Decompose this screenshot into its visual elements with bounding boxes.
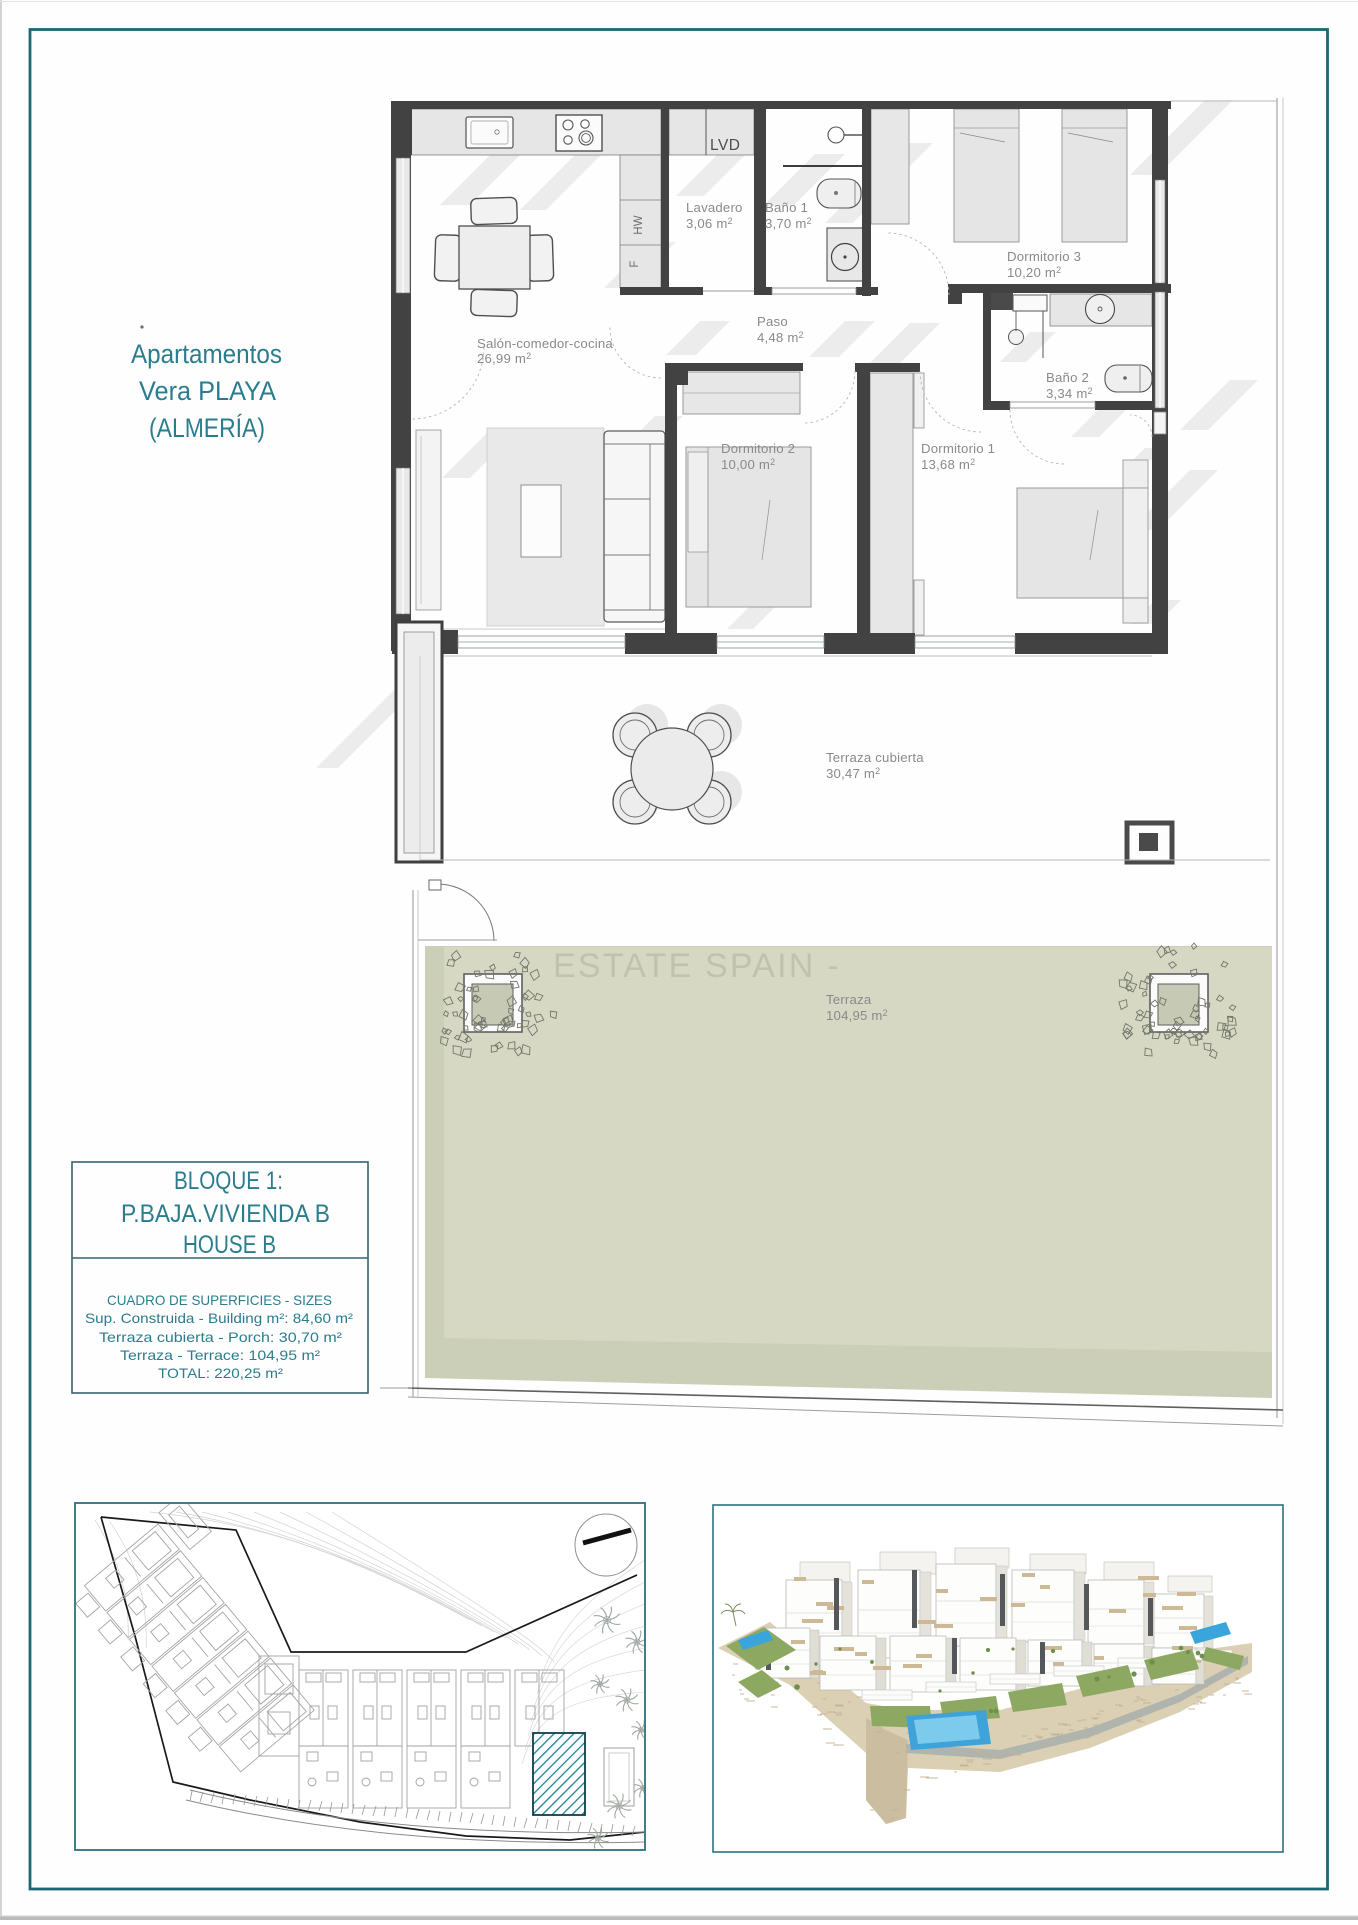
svg-text:(ALMERÍA): (ALMERÍA) — [149, 413, 265, 443]
svg-text:Terraza cubierta - Porch: 30,: Terraza cubierta - Porch: 30,70 m² — [99, 1329, 342, 1345]
svg-text:Baño 2: Baño 2 — [1046, 370, 1089, 385]
svg-text:3,34 m2: 3,34 m2 — [1046, 386, 1093, 401]
svg-text:CUADRO DE SUPERFICIES - SIZES: CUADRO DE SUPERFICIES - SIZES — [107, 1292, 332, 1308]
svg-text:Terraza: Terraza — [826, 992, 872, 1007]
svg-text:Dormitorio 2: Dormitorio 2 — [721, 441, 795, 456]
svg-text:TOTAL: 220,25 m²: TOTAL: 220,25 m² — [158, 1365, 283, 1381]
svg-text:HW: HW — [633, 215, 645, 235]
svg-text:F: F — [629, 260, 641, 267]
svg-text:Lavadero: Lavadero — [686, 200, 743, 215]
svg-text:104,95 m2: 104,95 m2 — [826, 1008, 888, 1023]
svg-text:Vera PLAYA: Vera PLAYA — [139, 376, 276, 406]
svg-text:4,48 m2: 4,48 m2 — [757, 330, 804, 345]
svg-text:BLOQUE 1:: BLOQUE 1: — [174, 1167, 283, 1195]
svg-text:26,99 m2: 26,99 m2 — [477, 351, 531, 366]
svg-text:3,70 m2: 3,70 m2 — [765, 216, 812, 231]
svg-text:Dormitorio 3: Dormitorio 3 — [1007, 249, 1081, 264]
svg-text:LVD: LVD — [710, 137, 741, 154]
svg-text:Dormitorio 1: Dormitorio 1 — [921, 441, 995, 456]
svg-text:Sup. Construida - Building m²: Sup. Construida - Building m²: 84,60 m² — [85, 1310, 353, 1326]
svg-text:10,00 m2: 10,00 m2 — [721, 457, 775, 472]
svg-text:Paso: Paso — [757, 314, 788, 329]
svg-text:ESTATE SPAIN -: ESTATE SPAIN - — [553, 947, 841, 985]
svg-text:P.BAJA.VIVIENDA B: P.BAJA.VIVIENDA B — [121, 1200, 330, 1228]
svg-text:10,20 m2: 10,20 m2 — [1007, 265, 1061, 280]
svg-text:HOUSE B: HOUSE B — [183, 1231, 276, 1259]
svg-text:13,68 m2: 13,68 m2 — [921, 457, 975, 472]
svg-text:Baño 1: Baño 1 — [765, 200, 808, 215]
svg-text:Salón-comedor-cocina: Salón-comedor-cocina — [477, 336, 613, 351]
svg-text:Apartamentos: Apartamentos — [131, 339, 282, 369]
svg-text:Terraza cubierta: Terraza cubierta — [826, 750, 924, 765]
svg-text:3,06 m2: 3,06 m2 — [686, 216, 733, 231]
svg-text:Terraza - Terrace: 104,95 m²: Terraza - Terrace: 104,95 m² — [120, 1347, 320, 1363]
svg-text:30,47 m2: 30,47 m2 — [826, 766, 880, 781]
